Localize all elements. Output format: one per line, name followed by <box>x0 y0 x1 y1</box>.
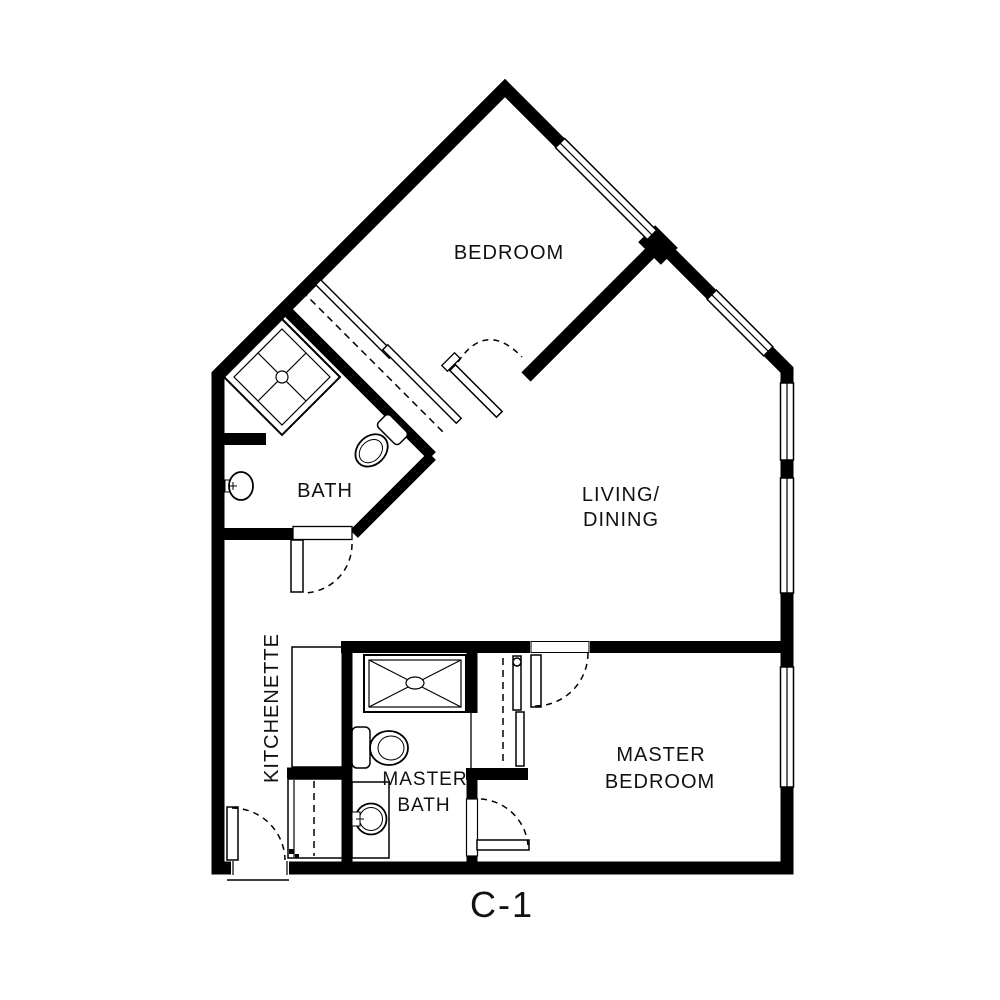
kitchenette-closet <box>288 779 343 858</box>
unit-plan-code: C-1 <box>470 884 534 925</box>
kitchenette-counter <box>292 647 343 767</box>
kitchenette-label: KITCHENETTE <box>261 633 283 783</box>
window-icon <box>781 478 794 593</box>
window-icon <box>707 290 773 356</box>
master-shower-icon <box>364 655 466 712</box>
master-bedroom-label-line2: BEDROOM <box>605 771 715 793</box>
master-closet <box>503 656 524 766</box>
bedroom-door <box>442 340 522 417</box>
bath-door <box>291 527 352 594</box>
master-bedroom-label-line1: MASTER <box>616 744 705 766</box>
living-dining-label-line2: DINING <box>583 509 659 531</box>
bath-label: BATH <box>297 480 353 502</box>
window-icon <box>781 667 794 787</box>
window-icon <box>555 138 656 239</box>
master-bath-door <box>467 799 530 856</box>
master-sink-icon <box>352 782 389 858</box>
master-bath-label-line2: BATH <box>397 795 450 816</box>
living-dining-label-line1: LIVING/ <box>582 484 660 506</box>
floor-plan: BEDROOM LIVING/ DINING BATH KITCHENETTE … <box>0 0 1000 1000</box>
bedroom-label: BEDROOM <box>454 242 564 264</box>
bath-sink-icon <box>225 472 253 500</box>
bath-wall-diagonal <box>354 456 432 534</box>
bedroom-wall <box>526 245 658 377</box>
master-toilet-icon <box>352 727 408 768</box>
master-bedroom-door <box>531 642 589 708</box>
entry-door <box>227 807 289 880</box>
shower-icon <box>224 319 340 435</box>
master-bath-label-line1: MASTER <box>382 769 467 790</box>
window-icon <box>781 383 794 460</box>
floor-plan-svg: BEDROOM LIVING/ DINING BATH KITCHENETTE … <box>0 0 1000 1000</box>
